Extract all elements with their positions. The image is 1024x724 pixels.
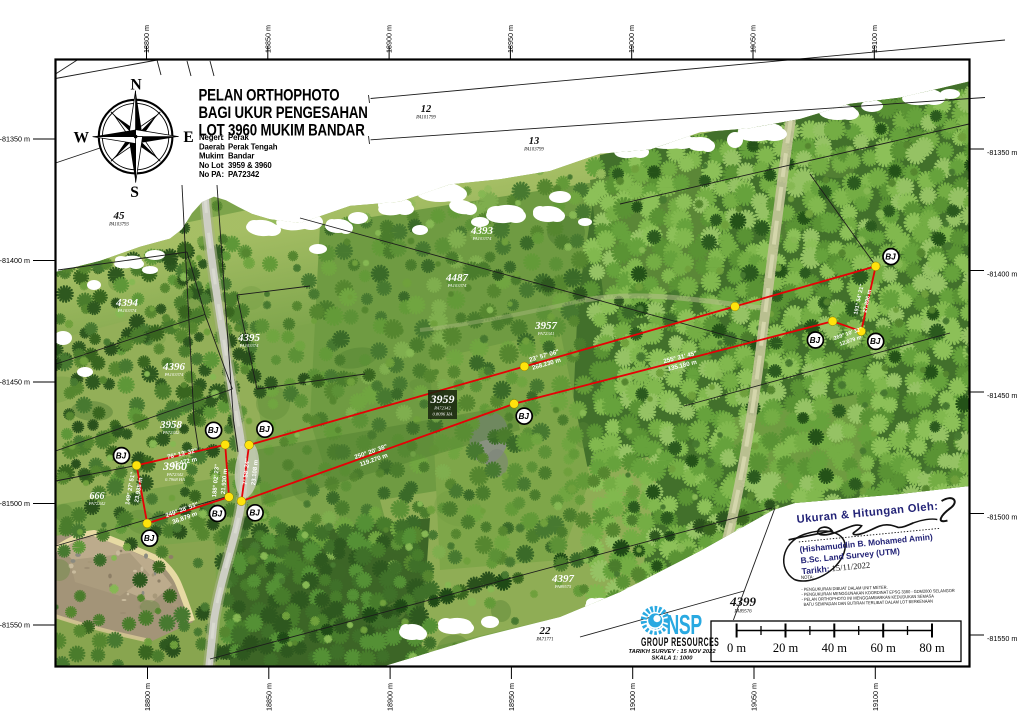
svg-text:BJ: BJ	[870, 337, 881, 346]
svg-text:E: E	[183, 129, 193, 146]
svg-text:PA103374: PA103374	[164, 372, 185, 377]
svg-text:Perak: Perak	[228, 133, 250, 142]
svg-text:13: 13	[529, 136, 540, 147]
svg-text::: :	[222, 161, 225, 170]
svg-text:-81500 m: -81500 m	[0, 499, 30, 508]
svg-text:PA103374: PA103374	[117, 308, 138, 313]
svg-text:18900 m: 18900 m	[386, 683, 395, 711]
svg-text:NOTA:: NOTA:	[801, 574, 814, 580]
svg-text:Mukim: Mukim	[199, 152, 223, 161]
svg-text:GROUP RESOURCES: GROUP RESOURCES	[641, 636, 719, 649]
svg-text:80 m: 80 m	[919, 641, 945, 655]
svg-text:18950 m: 18950 m	[506, 25, 515, 53]
svg-text:18900 m: 18900 m	[385, 25, 394, 53]
svg-text:19100 m: 19100 m	[871, 683, 880, 711]
svg-text:BAGI UKUR PENGESAHAN: BAGI UKUR PENGESAHAN	[199, 105, 368, 122]
svg-text:PA72342: PA72342	[228, 170, 260, 179]
svg-text:S: S	[130, 184, 139, 201]
svg-text:PA89576: PA89576	[733, 610, 752, 615]
svg-text:18800 m: 18800 m	[142, 25, 151, 53]
svg-text:PA89575: PA89575	[554, 584, 572, 589]
svg-text:No Lot: No Lot	[199, 161, 224, 170]
svg-text:BJ: BJ	[144, 534, 155, 543]
svg-text:PA101799: PA101799	[415, 116, 436, 121]
svg-text:N: N	[130, 77, 141, 94]
svg-text:3960: 3960	[162, 459, 187, 473]
svg-text:-81550 m: -81550 m	[0, 621, 30, 630]
svg-text:19050 m: 19050 m	[750, 683, 759, 711]
svg-text:PA103793: PA103793	[108, 223, 129, 228]
svg-text::: :	[222, 142, 225, 151]
svg-text:18800 m: 18800 m	[143, 683, 152, 711]
svg-text:BJ: BJ	[885, 252, 896, 261]
svg-text:PA103374: PA103374	[447, 283, 468, 288]
svg-text:19000 m: 19000 m	[627, 25, 636, 53]
svg-text:BJ: BJ	[116, 451, 127, 460]
svg-text:BJ: BJ	[518, 412, 529, 421]
svg-text:19000 m: 19000 m	[628, 683, 637, 711]
svg-text::: :	[222, 152, 225, 161]
svg-text:PA103374: PA103374	[472, 236, 493, 241]
svg-text:19100 m: 19100 m	[870, 25, 879, 53]
svg-text:12: 12	[421, 104, 432, 115]
svg-text:PA72342: PA72342	[88, 501, 106, 506]
svg-text:0 m: 0 m	[727, 641, 746, 655]
svg-text:PELAN ORTHOPHOTO: PELAN ORTHOPHOTO	[199, 87, 340, 104]
svg-text:Bandar: Bandar	[228, 152, 254, 161]
svg-text:BJ: BJ	[212, 509, 223, 518]
svg-text:-81350 m: -81350 m	[0, 135, 30, 144]
svg-text:-81400 m: -81400 m	[987, 270, 1017, 279]
svg-text:3959: 3959	[430, 392, 455, 406]
svg-text:18950 m: 18950 m	[507, 683, 516, 711]
svg-text:No PA: No PA	[199, 170, 222, 179]
svg-text:PA103799: PA103799	[523, 148, 544, 153]
svg-text:PA72341: PA72341	[537, 331, 555, 336]
svg-text:Perak Tengah: Perak Tengah	[228, 142, 278, 151]
svg-text:-81500 m: -81500 m	[987, 513, 1017, 522]
svg-text::: :	[222, 170, 225, 179]
svg-text:20 m: 20 m	[773, 641, 799, 655]
svg-text:0.7968 HA: 0.7968 HA	[165, 477, 185, 482]
svg-text:BJ: BJ	[208, 426, 219, 435]
svg-text:4399: 4399	[729, 594, 757, 609]
svg-text:PA71771: PA71771	[535, 638, 553, 643]
svg-text:60 m: 60 m	[871, 641, 897, 655]
svg-text:-81450 m: -81450 m	[0, 378, 30, 387]
svg-text::: :	[222, 133, 225, 142]
svg-text:19050 m: 19050 m	[749, 25, 758, 53]
svg-text:-81400 m: -81400 m	[0, 256, 30, 265]
svg-text:BJ: BJ	[249, 509, 260, 518]
svg-text:PA103374: PA103374	[239, 343, 260, 348]
svg-text:-81450 m: -81450 m	[987, 391, 1017, 400]
svg-text:22: 22	[539, 625, 552, 637]
svg-text:40 m: 40 m	[822, 641, 848, 655]
svg-text:-81350 m: -81350 m	[987, 148, 1017, 157]
svg-text:SKALA 1: 1000: SKALA 1: 1000	[651, 656, 693, 662]
svg-text:BJ: BJ	[259, 425, 270, 434]
svg-text:BJ: BJ	[810, 336, 821, 345]
svg-text:PA72342: PA72342	[433, 406, 451, 411]
svg-text:TARIKH SURVEY : 15 NOV 2022: TARIKH SURVEY : 15 NOV 2022	[628, 649, 716, 655]
svg-text:18850 m: 18850 m	[263, 25, 272, 53]
svg-text:-81550 m: -81550 m	[987, 634, 1017, 643]
svg-text:W: W	[74, 129, 90, 146]
svg-text:Negeri: Negeri	[199, 133, 223, 142]
svg-text:PA72342: PA72342	[162, 430, 180, 435]
svg-text:45: 45	[113, 210, 126, 222]
svg-text:3959 & 3960: 3959 & 3960	[228, 161, 272, 170]
svg-text:0.8096 HA: 0.8096 HA	[433, 412, 453, 417]
svg-text:18850 m: 18850 m	[264, 683, 273, 711]
